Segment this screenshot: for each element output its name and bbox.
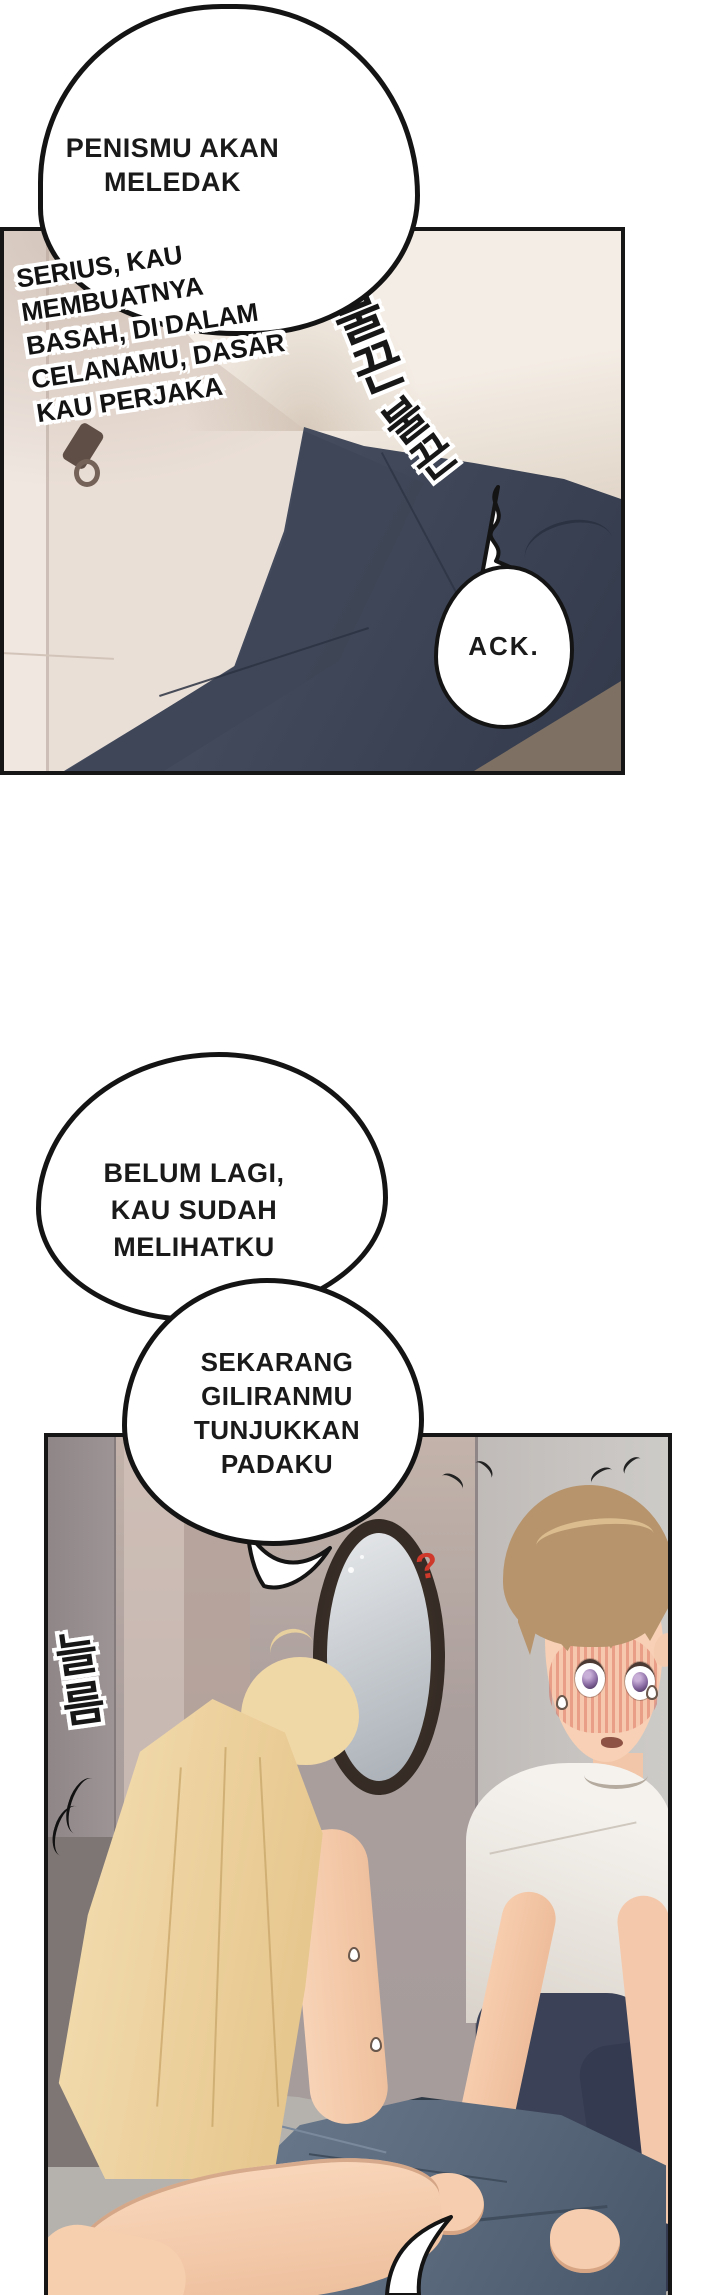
- man-left-eye: [575, 1659, 605, 1697]
- sfx-text: 늘름: [49, 1628, 105, 1733]
- man-collar: [584, 1761, 648, 1789]
- man-mouth: [601, 1737, 623, 1748]
- comic-page: 불끈 불끈 ACK. PENISMU AKAN MELEDAK SERIUS, …: [0, 0, 719, 2295]
- iris: [582, 1669, 598, 1689]
- line: KAU SUDAH: [69, 1192, 319, 1229]
- line: MELIHATKU: [69, 1229, 319, 1266]
- ack-text: ACK.: [438, 631, 570, 662]
- iris: [632, 1672, 648, 1692]
- sweat-drop: [348, 1947, 360, 1962]
- line: BELUM LAGI,: [69, 1155, 319, 1192]
- man-right-hand: [550, 2209, 620, 2273]
- line: TUNJUKKAN: [137, 1413, 417, 1447]
- speech-bubble-3: SEKARANG GILIRANMU TUNJUKKAN PADAKU: [122, 1278, 424, 1546]
- door-ring: [74, 459, 100, 487]
- speech-bubble-2-text: BELUM LAGI, KAU SUDAH MELIHATKU: [69, 1155, 319, 1266]
- sfx-flick: 늘름: [49, 1621, 153, 1738]
- flustered-mark: [438, 1470, 466, 1495]
- line: MELEDAK: [65, 165, 280, 199]
- mirror-sparkle: [348, 1567, 354, 1573]
- line: PENISMU AKAN: [65, 131, 280, 165]
- sweat-drop: [646, 1685, 658, 1700]
- speech-bubble-2: BELUM LAGI, KAU SUDAH MELIHATKU: [36, 1052, 388, 1322]
- bottom-bubble-tail: [365, 2212, 475, 2295]
- panel-2: ? ?: [44, 1433, 672, 2295]
- sweat-drop: [370, 2037, 382, 2052]
- line: GILIRANMU: [137, 1379, 417, 1413]
- speech-bubble-1-text: PENISMU AKAN MELEDAK: [65, 131, 280, 199]
- speech-bubble-3-text: SEKARANG GILIRANMU TUNJUKKAN PADAKU: [137, 1345, 417, 1481]
- mirror-sparkle: [360, 1555, 364, 1559]
- line: SEKARANG: [137, 1345, 417, 1379]
- line: PADAKU: [137, 1447, 417, 1481]
- sweat-drop: [556, 1695, 568, 1710]
